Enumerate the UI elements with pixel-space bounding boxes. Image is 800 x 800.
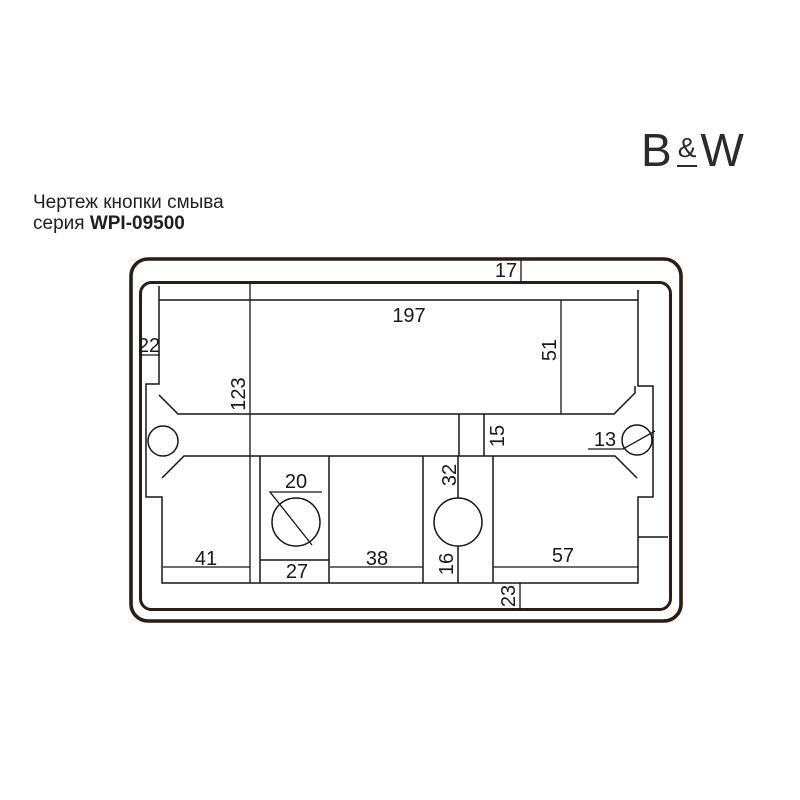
screw-hole-right bbox=[622, 425, 652, 455]
dim-label-17: 17 bbox=[495, 260, 517, 282]
mounting-frame-outline bbox=[146, 286, 653, 583]
button-hole-left bbox=[272, 498, 320, 546]
dim-label-57: 57 bbox=[552, 545, 574, 567]
dim-label-51: 51 bbox=[539, 339, 561, 361]
dim-label-22: 22 bbox=[138, 335, 160, 357]
dim-label-23: 23 bbox=[498, 585, 520, 607]
dim-label-27: 27 bbox=[286, 561, 308, 583]
dim-label-13: 13 bbox=[594, 429, 616, 451]
button-hole-center bbox=[434, 498, 482, 546]
dim-label-15: 15 bbox=[487, 425, 509, 447]
technical-drawing: 17 197 22 13 20 41 27 38 57 123 51 15 32… bbox=[0, 0, 800, 800]
crossbar-bottom-edge bbox=[162, 456, 637, 478]
dim-label-41: 41 bbox=[195, 548, 217, 570]
dim-label-197: 197 bbox=[392, 305, 425, 327]
crossbar-slot-lines bbox=[459, 414, 484, 456]
dim-label-32: 32 bbox=[439, 464, 461, 486]
plate-inner-outline bbox=[141, 283, 671, 610]
screw-hole-left bbox=[148, 426, 178, 456]
dim-label-16: 16 bbox=[436, 553, 458, 575]
dim-label-38: 38 bbox=[366, 548, 388, 570]
dim-label-123: 123 bbox=[228, 377, 250, 410]
dim-label-20: 20 bbox=[285, 471, 307, 493]
page: Чертеж кнопки смыва серия WPI-09500 B & … bbox=[0, 0, 800, 800]
